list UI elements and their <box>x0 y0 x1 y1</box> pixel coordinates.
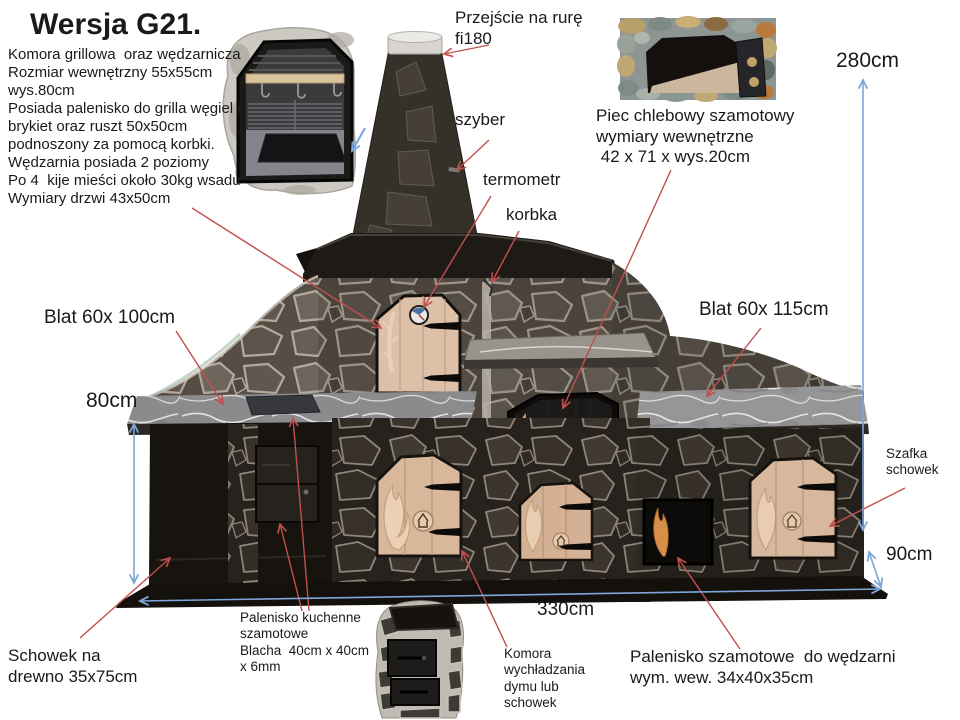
slide: Wersja G21. Komora grillowa oraz wędzarn… <box>0 0 960 720</box>
smoker-firebox-opening <box>644 500 712 564</box>
label-dim-330cm: 330cm <box>537 598 594 621</box>
ash-tray <box>258 134 346 162</box>
label-dim-90cm: 90cm <box>886 543 932 566</box>
stove-top-opening <box>390 604 458 630</box>
label-wood-storage: Schowek na drewno 35x75cm <box>8 646 137 687</box>
label-cooling-chamber: Komora wychładzania dymu lub schowek <box>504 646 585 712</box>
grill-chamber-description: Komora grillowa oraz wędzarnicza Rozmiar… <box>8 46 268 208</box>
label-szyber: szyber <box>455 110 505 131</box>
label-korbka: korbka <box>506 205 557 226</box>
dim-90cm <box>869 552 881 587</box>
chimney <box>352 32 478 241</box>
kitchen-firebox-metal-door <box>256 446 318 522</box>
page-title: Wersja G21. <box>30 8 201 42</box>
label-blat-left: Blat 60x 100cm <box>44 306 175 329</box>
label-kitchen-firebox: Palenisko kuchenne szamotowe Blacha 40cm… <box>240 610 369 676</box>
grill-firebox-door <box>377 455 461 556</box>
label-dim-280cm: 280cm <box>836 48 899 74</box>
label-pipe-transition: Przejście na rurę fi180 <box>455 8 583 49</box>
cabinet-door <box>750 458 836 558</box>
cooling-chamber-door <box>520 483 592 560</box>
label-bread-oven: Piec chlebowy szamotowy wymiary wewnętrz… <box>596 106 794 168</box>
bread-oven-inset <box>617 16 777 102</box>
label-blat-right: Blat 60x 115cm <box>699 298 829 321</box>
oven-door-open <box>736 38 766 97</box>
label-smoker-firebox: Palenisko szamotowe do wędzarni wym. wew… <box>630 647 896 688</box>
mini-stove-inset <box>376 601 464 718</box>
cast-plate <box>246 395 320 415</box>
label-cabinet: Szafka schowek <box>886 446 939 479</box>
smoker-cap-roof <box>296 233 619 282</box>
label-dim-80cm: 80cm <box>86 388 137 414</box>
label-termometr: termometr <box>483 170 560 191</box>
right-base <box>636 428 864 580</box>
